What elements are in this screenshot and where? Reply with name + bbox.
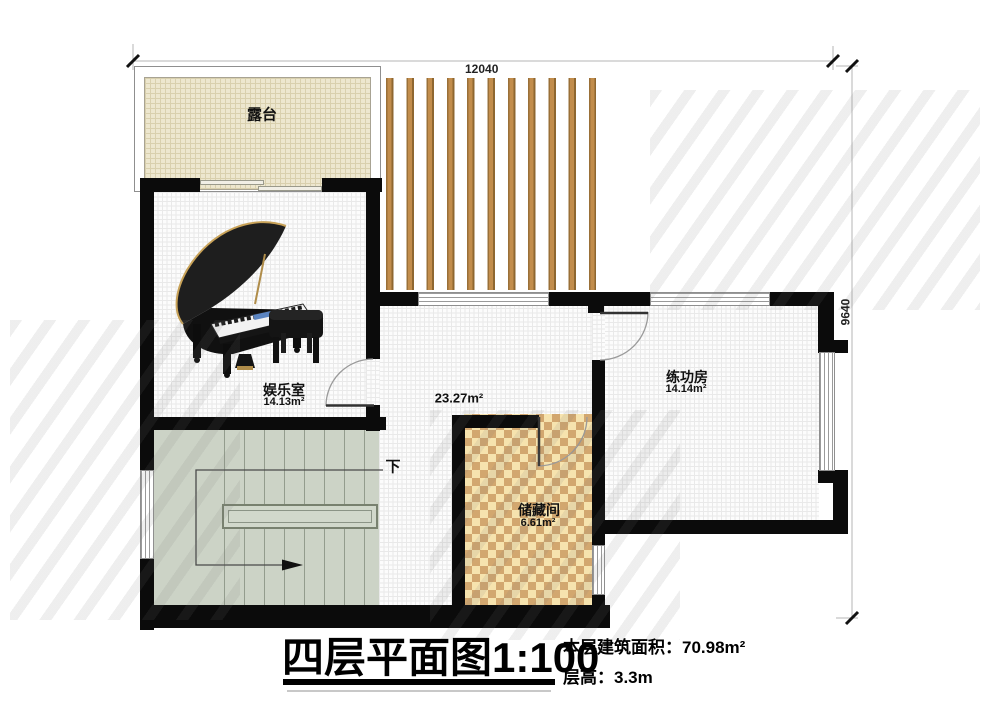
dimension-right-label: 9640 [838, 299, 852, 326]
title-underline-thin [287, 690, 551, 692]
piano-pedal-lyre [235, 354, 255, 368]
title-underline-thick [283, 679, 555, 685]
piano-pedals [237, 366, 253, 370]
hall-area-label: 23.27m² [435, 391, 483, 406]
stair-direction-arrow [282, 560, 303, 571]
entertainment-room-area: 14.13m² [264, 396, 305, 408]
storage-room-area: 6.61m² [521, 517, 556, 529]
plan-linework-overlay [0, 0, 1000, 706]
floor-height-text: 层高：3.3m [563, 663, 653, 688]
stairs-down-label: 下 [385, 456, 400, 477]
terrace-label: 露台 [247, 104, 277, 125]
storage-door [538, 417, 587, 466]
stair-walk-line [196, 470, 383, 571]
grand-piano-image [165, 212, 337, 380]
floor-plan-canvas: 露台 娱乐室 14.13m² 23.27m² 练功房 14.14m² 储藏间 6… [0, 0, 1000, 706]
dimension-top-label: 12040 [465, 62, 498, 76]
practice-door [600, 312, 648, 360]
piano-bench [269, 310, 323, 363]
building-area-text: 本层建筑面积：70.98m² [563, 633, 745, 658]
practice-room-area: 14.14m² [666, 383, 707, 395]
plan-title: 四层平面图1:100 [282, 624, 599, 685]
